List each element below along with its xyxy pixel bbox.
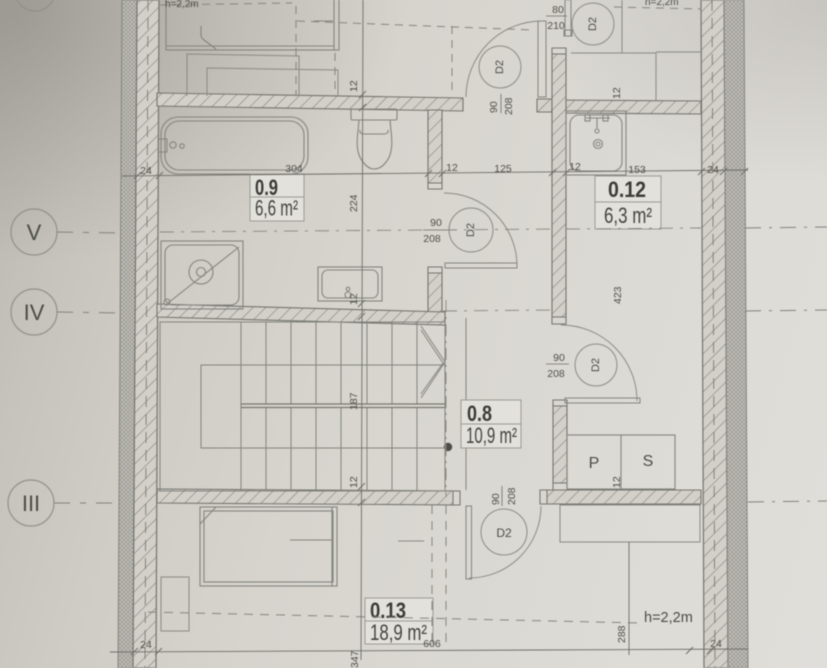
svg-text:210: 210	[547, 20, 565, 32]
svg-text:12: 12	[348, 476, 360, 488]
svg-text:187: 187	[348, 392, 360, 410]
svg-text:h=2,2m: h=2,2m	[645, 0, 679, 8]
svg-text:24: 24	[710, 638, 722, 650]
svg-text:12: 12	[348, 80, 360, 92]
svg-text:125: 125	[494, 163, 512, 175]
svg-text:10,9 m²: 10,9 m²	[466, 423, 517, 448]
svg-text:12: 12	[611, 476, 623, 488]
svg-text:P: P	[589, 455, 600, 472]
svg-text:80: 80	[552, 4, 564, 16]
svg-text:6,6 m²: 6,6 m²	[255, 196, 298, 221]
svg-text:12: 12	[569, 161, 581, 173]
svg-text:606: 606	[423, 638, 441, 650]
svg-text:0.12: 0.12	[608, 177, 646, 202]
svg-text:18,9 m²: 18,9 m²	[370, 620, 427, 645]
svg-text:D2: D2	[494, 60, 506, 74]
svg-text:90: 90	[490, 493, 502, 505]
svg-text:D2: D2	[587, 17, 599, 31]
svg-text:90: 90	[430, 217, 442, 229]
svg-text:304: 304	[285, 163, 303, 175]
svg-text:24: 24	[140, 639, 152, 651]
svg-text:90: 90	[488, 101, 500, 113]
svg-text:347: 347	[349, 650, 361, 668]
svg-text:24: 24	[140, 165, 152, 177]
svg-text:IV: IV	[24, 300, 45, 325]
svg-text:423: 423	[612, 286, 624, 304]
svg-text:S: S	[643, 453, 654, 470]
svg-text:288: 288	[616, 625, 628, 643]
svg-text:D2: D2	[590, 358, 602, 372]
svg-text:90: 90	[553, 352, 565, 364]
svg-text:153: 153	[628, 164, 646, 176]
svg-text:12: 12	[446, 162, 458, 174]
svg-text:V: V	[27, 220, 42, 245]
svg-text:6,3 m²: 6,3 m²	[604, 203, 652, 228]
svg-text:24: 24	[707, 164, 719, 176]
svg-text:208: 208	[423, 233, 441, 245]
svg-text:D2: D2	[496, 526, 512, 540]
svg-text:12: 12	[611, 87, 623, 99]
svg-text:h=2,2m: h=2,2m	[165, 0, 199, 10]
svg-text:208: 208	[506, 487, 518, 505]
svg-text:III: III	[22, 491, 40, 516]
svg-text:h=2,2m: h=2,2m	[644, 610, 693, 626]
svg-text:224: 224	[348, 194, 360, 212]
svg-text:208: 208	[503, 97, 515, 115]
svg-text:208: 208	[547, 368, 565, 380]
svg-text:12: 12	[348, 293, 360, 305]
